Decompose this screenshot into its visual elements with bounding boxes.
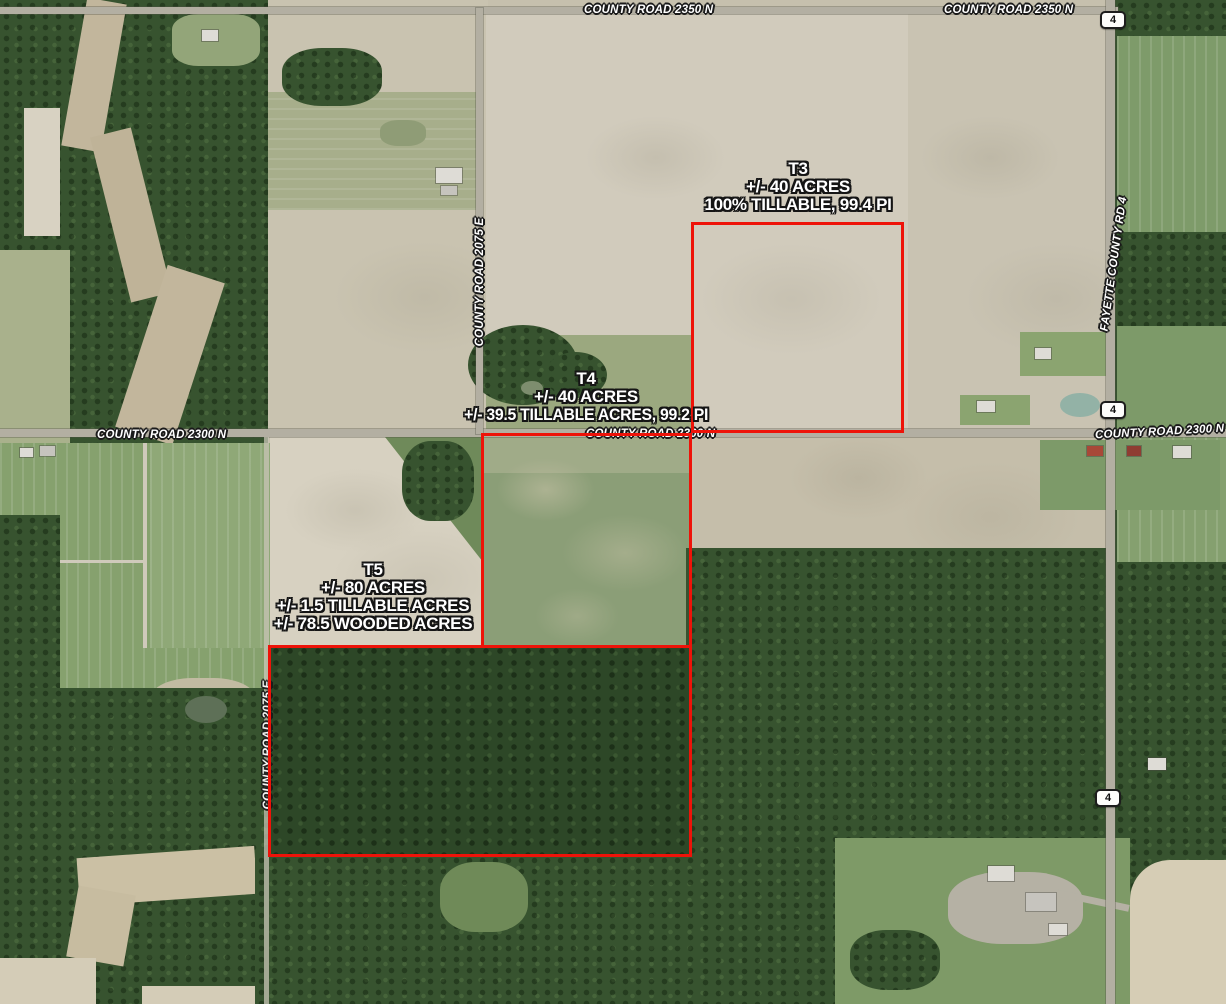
pond — [1060, 393, 1100, 417]
lawn — [1020, 332, 1112, 376]
road-label-cr2350n-east: COUNTY ROAD 2350 N — [944, 4, 1073, 16]
aerial-map: COUNTY ROAD 2350 N COUNTY ROAD 2350 N CO… — [0, 0, 1226, 1004]
building — [1049, 924, 1067, 935]
tree-cluster — [402, 441, 474, 521]
road-label-cr2350n-west: COUNTY ROAD 2350 N — [584, 4, 713, 16]
building — [40, 446, 55, 456]
lawn — [960, 395, 1030, 425]
road-label-cr2300n-west: COUNTY ROAD 2300 N — [97, 429, 226, 441]
clearing — [66, 886, 136, 967]
building — [1026, 893, 1056, 911]
tract-t5-label: T5 +/- 80 ACRES +/- 1.5 TILLABLE ACRES +… — [203, 561, 543, 633]
tract-id: T5 — [203, 561, 543, 579]
building — [1173, 446, 1191, 458]
field-patch — [1117, 326, 1226, 428]
field-path — [58, 560, 146, 563]
tract-acres: +/- 40 ACRES — [628, 178, 968, 196]
tract-detail: +/- 78.5 WOODED ACRES — [203, 615, 543, 633]
field-patch — [1130, 860, 1226, 1004]
building — [441, 186, 457, 195]
building — [977, 401, 995, 412]
tree-cluster — [850, 930, 940, 990]
tract-t4-label: T4 +/- 40 ACRES +/- 39.5 TILLABLE ACRES,… — [416, 370, 756, 424]
tract-acres: +/- 80 ACRES — [203, 579, 543, 597]
route-4-shield-north: 4 — [1100, 11, 1126, 29]
building — [202, 30, 218, 41]
tract-id: T4 — [416, 370, 756, 388]
field-patch — [380, 120, 426, 146]
field-strip — [24, 108, 60, 236]
road-fayette-cr4 — [1106, 0, 1115, 1004]
building — [1035, 348, 1051, 359]
field-patch — [1117, 36, 1226, 232]
tree-cluster — [282, 48, 382, 106]
field-patch — [0, 958, 96, 1004]
tract-t5-boundary — [268, 645, 692, 857]
building — [1087, 446, 1103, 456]
field-path — [143, 443, 147, 648]
tract-detail: +/- 39.5 TILLABLE ACRES, 99.2 PI — [464, 406, 708, 424]
pond — [185, 696, 227, 723]
building — [436, 168, 462, 183]
building — [988, 866, 1014, 881]
tract-detail: +/- 1.5 TILLABLE ACRES — [203, 597, 543, 615]
route-4-shield-middle: 4 — [1100, 401, 1126, 419]
building — [20, 448, 33, 457]
tract-t3-label: T3 +/- 40 ACRES 100% TILLABLE, 99.4 PI — [628, 160, 968, 214]
building — [1127, 446, 1141, 456]
building — [1148, 758, 1166, 770]
forest-patch — [0, 688, 270, 1004]
tract-id: T3 — [628, 160, 968, 178]
tract-acres: +/- 40 ACRES — [416, 388, 756, 406]
clearing — [440, 862, 528, 932]
tract-detail: 100% TILLABLE, 99.4 PI — [628, 196, 968, 214]
field-patch — [142, 986, 262, 1004]
route-4-shield-south: 4 — [1095, 789, 1121, 807]
field-patch — [0, 250, 70, 450]
road-label-cr2075e: COUNTY ROAD 2075 E — [474, 218, 486, 347]
